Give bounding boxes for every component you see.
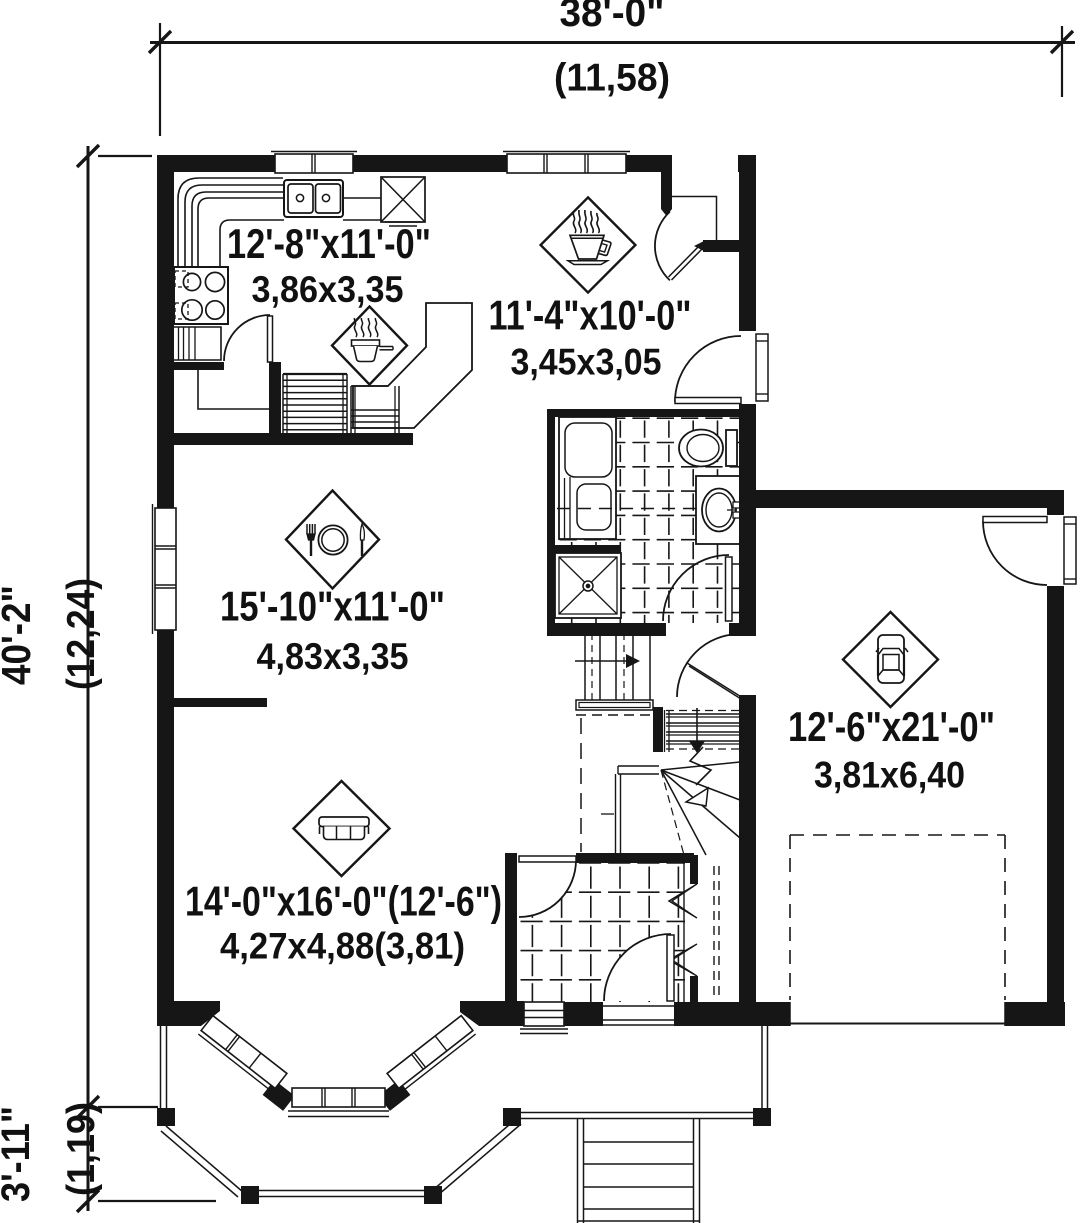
svg-text:11'-4"x10'-0": 11'-4"x10'-0" bbox=[489, 292, 692, 339]
svg-text:14'-0"x16'-0"(12'-6"): 14'-0"x16'-0"(12'-6") bbox=[185, 878, 502, 925]
svg-text:(11,58): (11,58) bbox=[554, 57, 670, 100]
svg-text:40'-2": 40'-2" bbox=[0, 585, 39, 685]
svg-text:15'-10"x11'-0": 15'-10"x11'-0" bbox=[220, 583, 445, 630]
svg-text:12'-6"x21'-0": 12'-6"x21'-0" bbox=[788, 703, 995, 750]
svg-text:4,27x4,88(3,81): 4,27x4,88(3,81) bbox=[220, 925, 465, 967]
svg-text:3,45x3,05: 3,45x3,05 bbox=[511, 341, 662, 383]
svg-text:4,83x3,35: 4,83x3,35 bbox=[257, 635, 409, 677]
svg-text:(1,19): (1,19) bbox=[60, 1102, 103, 1196]
svg-text:38'-0": 38'-0" bbox=[560, 0, 665, 35]
svg-text:3,81x6,40: 3,81x6,40 bbox=[814, 754, 965, 796]
svg-text:3'-11": 3'-11" bbox=[0, 1106, 38, 1202]
svg-text:3,86x3,35: 3,86x3,35 bbox=[252, 268, 404, 310]
svg-text:12'-8"x11'-0": 12'-8"x11'-0" bbox=[227, 220, 431, 267]
svg-text:(12,24): (12,24) bbox=[60, 578, 103, 690]
